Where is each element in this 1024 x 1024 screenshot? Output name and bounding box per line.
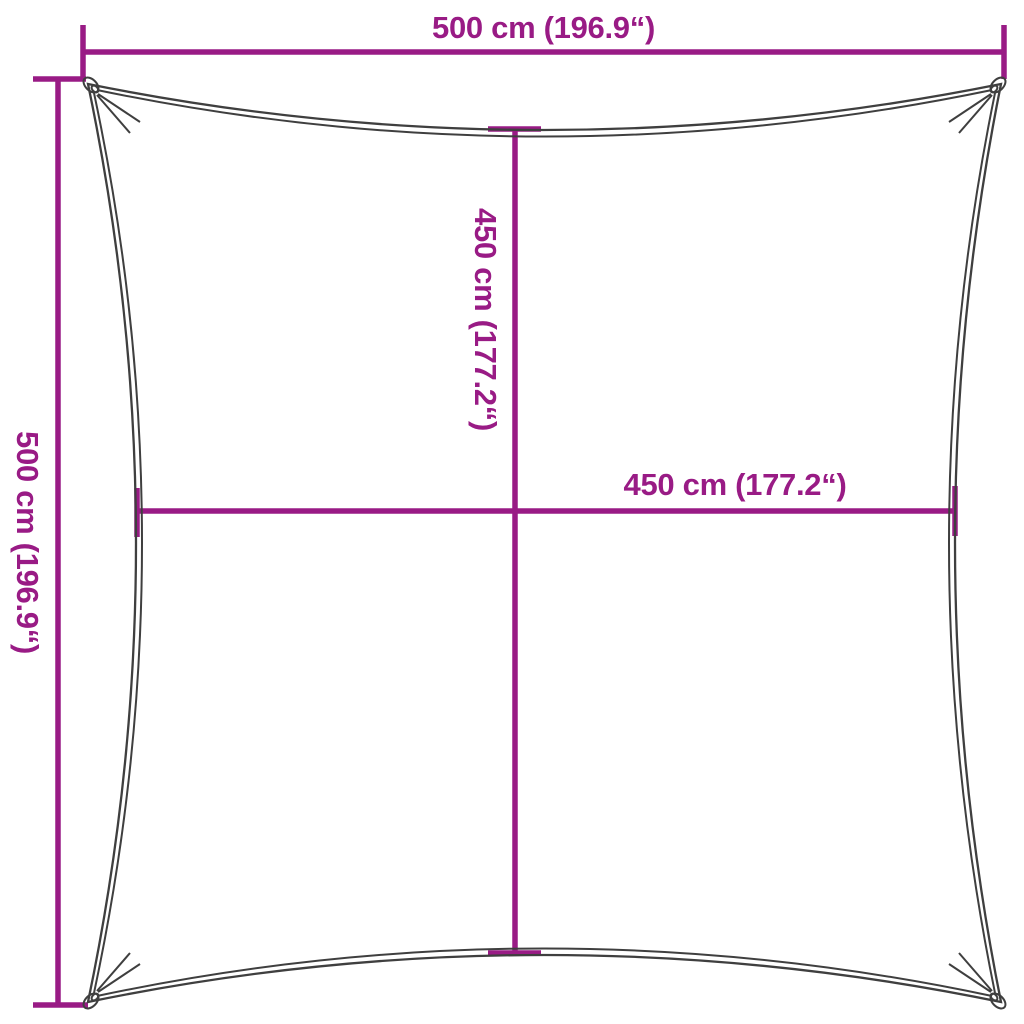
sail-inner-seam [94,90,995,996]
fold-lines-top-right [949,94,992,133]
dimension-lines [33,25,1004,1005]
dimension-label-left-height: 500 cm (196.9“) [4,79,50,1005]
dimension-label-inner-width: 450 cm (177.2“) [515,463,955,507]
sail-drawing [81,75,1009,1012]
sail-seam-left [94,93,142,993]
diagram-canvas [0,0,1024,1024]
corner-rings [81,75,1009,1012]
fold-lines-bottom-right [949,953,992,992]
fold-lines-top-left [97,94,140,133]
shade-sail-dimension-diagram: 500 cm (196.9“) 500 cm (196.9“) 450 cm (… [0,0,1024,1024]
dimension-label-inner-height: 450 cm (177.2“) [462,128,508,511]
fold-lines-bottom-left [97,953,140,992]
dimension-label-top-width: 500 cm (196.9“) [83,6,1004,50]
sail-outer-edge [88,84,1001,1002]
corner-fold-lines [97,94,992,992]
